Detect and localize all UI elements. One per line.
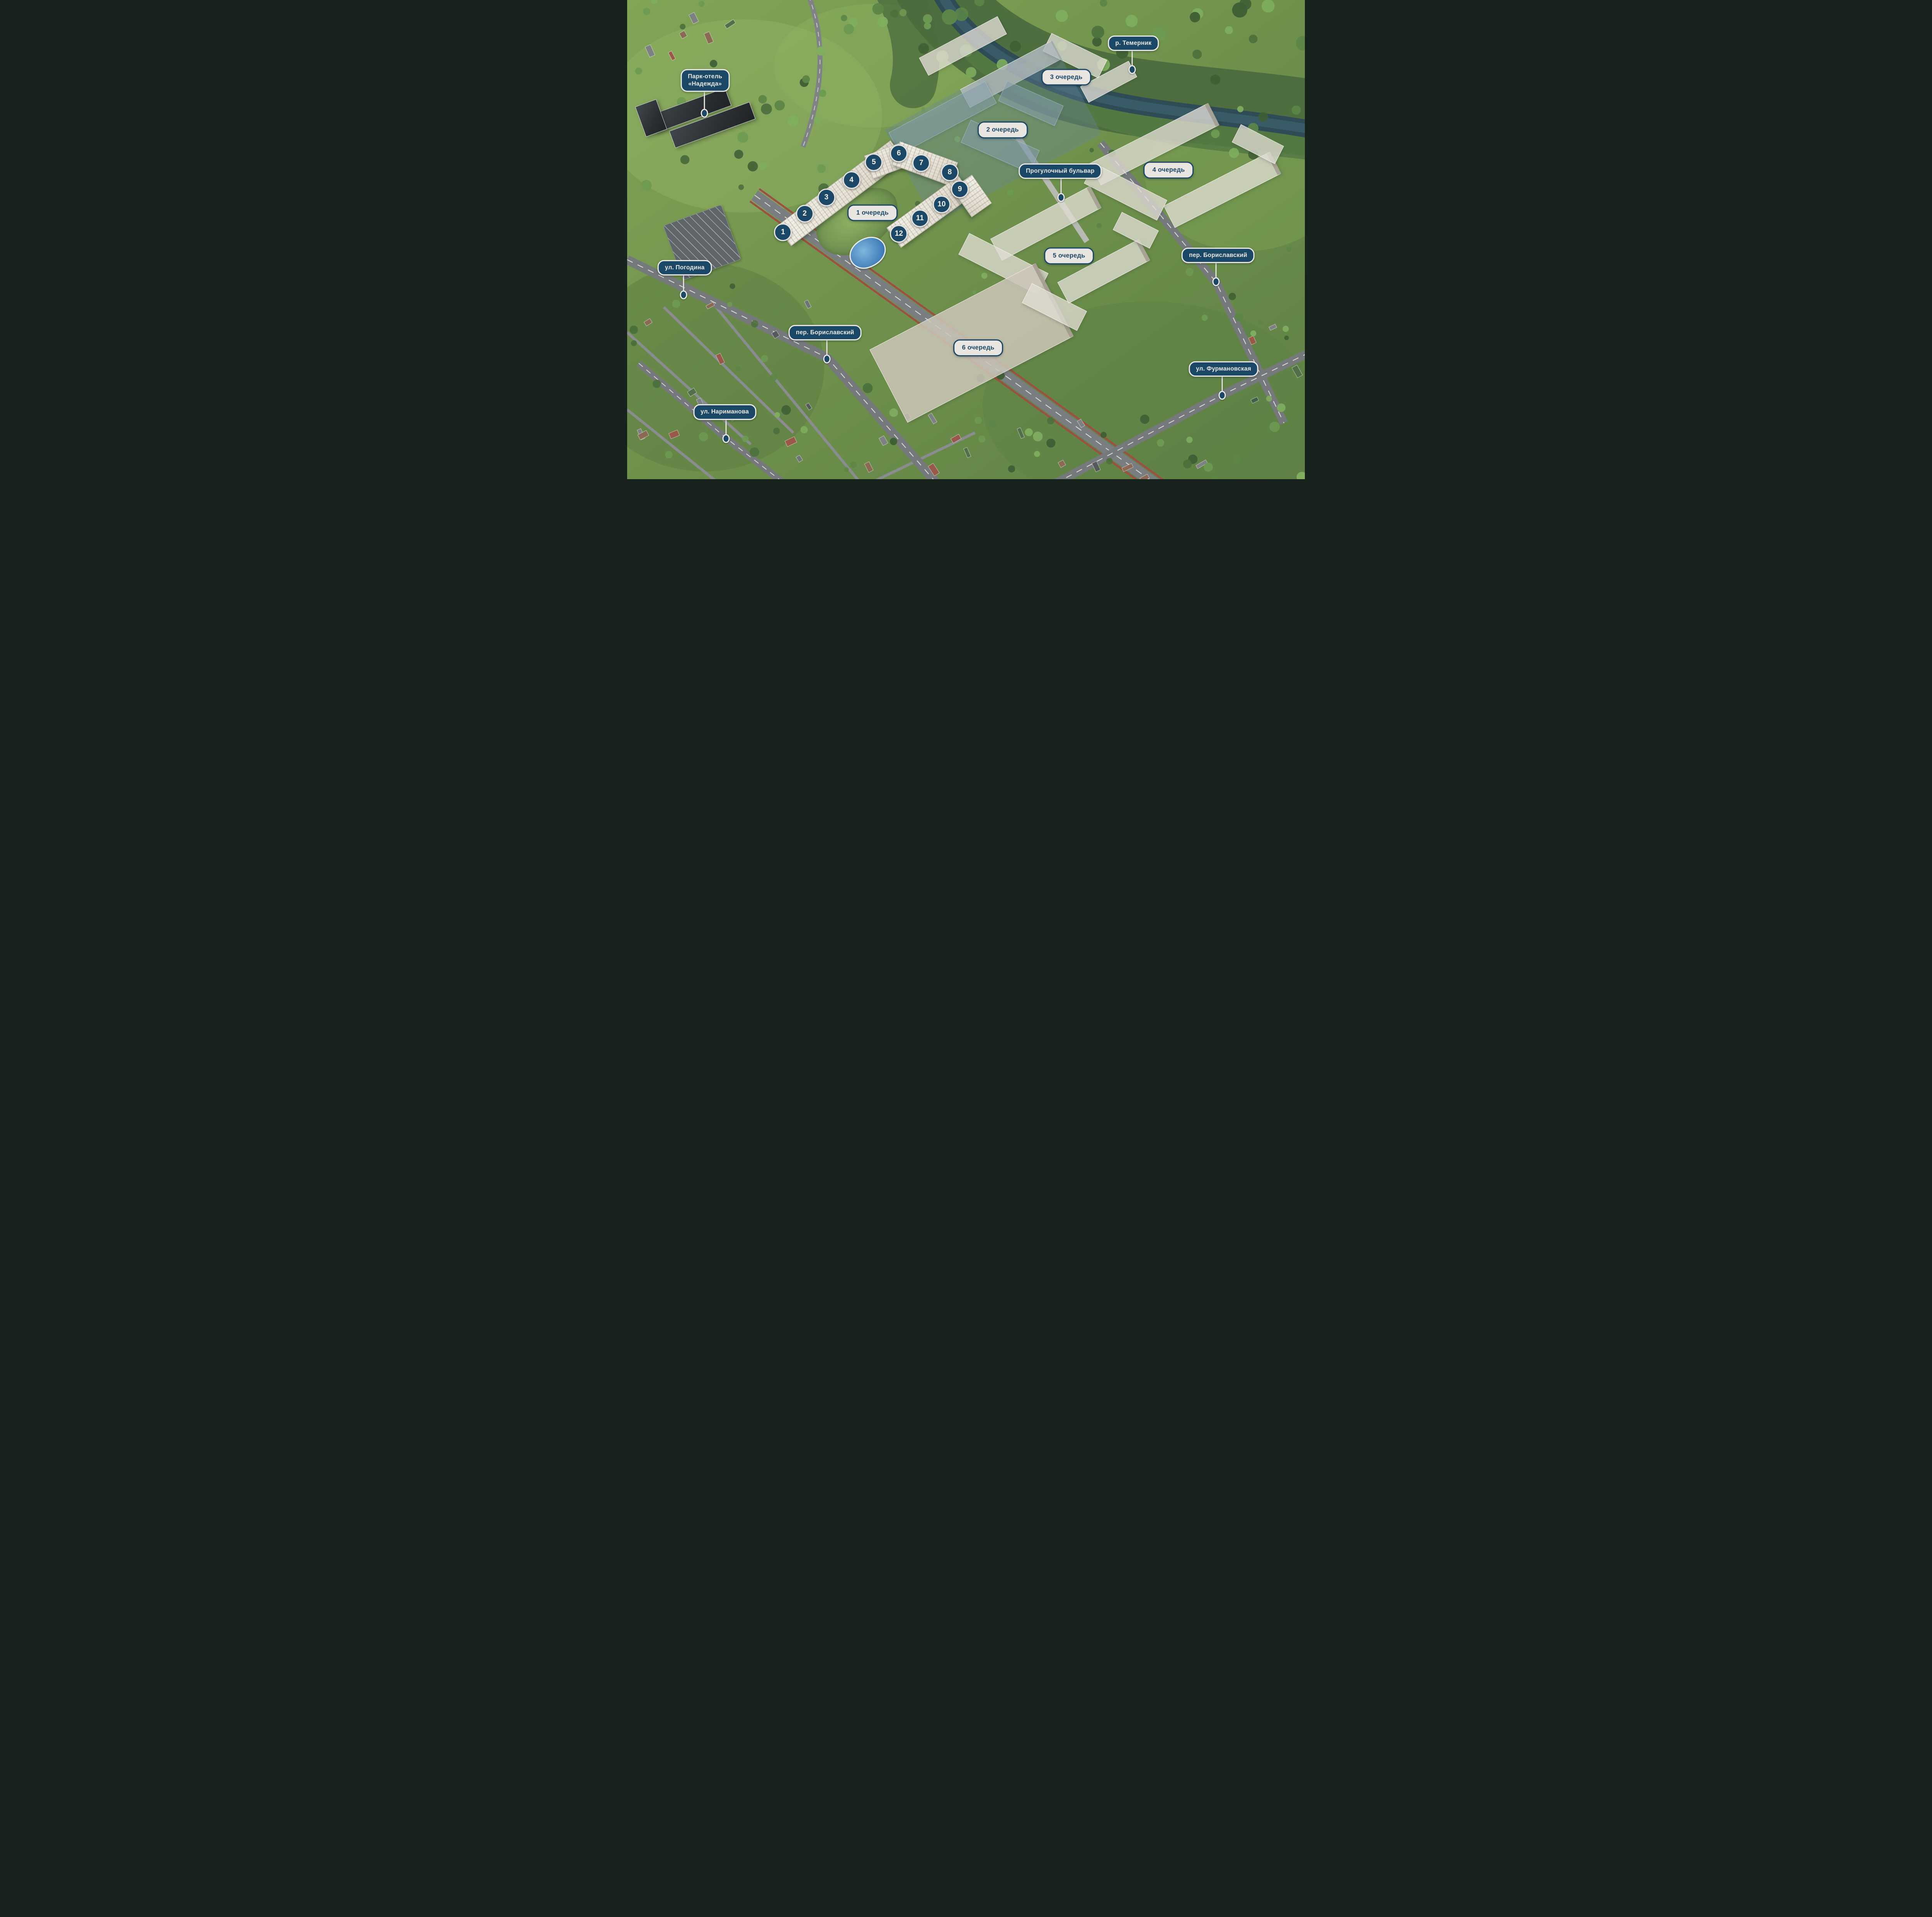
building-marker-10[interactable]: 10 <box>933 196 951 213</box>
building-marker-4[interactable]: 4 <box>843 171 861 189</box>
building-marker-number: 9 <box>958 185 962 194</box>
building-marker-2[interactable]: 2 <box>796 205 814 223</box>
building-marker-number: 7 <box>919 159 923 167</box>
building-marker-5[interactable]: 5 <box>865 153 883 171</box>
building-marker-12[interactable]: 12 <box>890 225 908 243</box>
building-marker-1[interactable]: 1 <box>774 223 792 241</box>
building-marker-number: 10 <box>937 200 946 209</box>
building-marker-3[interactable]: 3 <box>818 189 835 206</box>
markers-layer: 123456789101112 <box>627 0 1305 479</box>
building-marker-number: 2 <box>803 209 807 218</box>
building-marker-number: 11 <box>916 214 924 223</box>
masterplan: р. ТемерникПарк-отель «Надежда»Прогулочн… <box>627 0 1305 479</box>
building-marker-6[interactable]: 6 <box>890 145 908 162</box>
building-marker-number: 6 <box>897 149 901 158</box>
building-marker-number: 8 <box>948 168 952 177</box>
building-marker-7[interactable]: 7 <box>912 154 930 172</box>
building-marker-number: 5 <box>872 158 876 167</box>
building-marker-number: 4 <box>849 176 854 184</box>
building-marker-number: 1 <box>781 228 785 236</box>
building-marker-number: 3 <box>824 193 828 202</box>
building-marker-8[interactable]: 8 <box>941 163 959 181</box>
building-marker-11[interactable]: 11 <box>911 209 929 227</box>
building-marker-number: 12 <box>895 230 903 238</box>
building-marker-9[interactable]: 9 <box>951 180 969 198</box>
